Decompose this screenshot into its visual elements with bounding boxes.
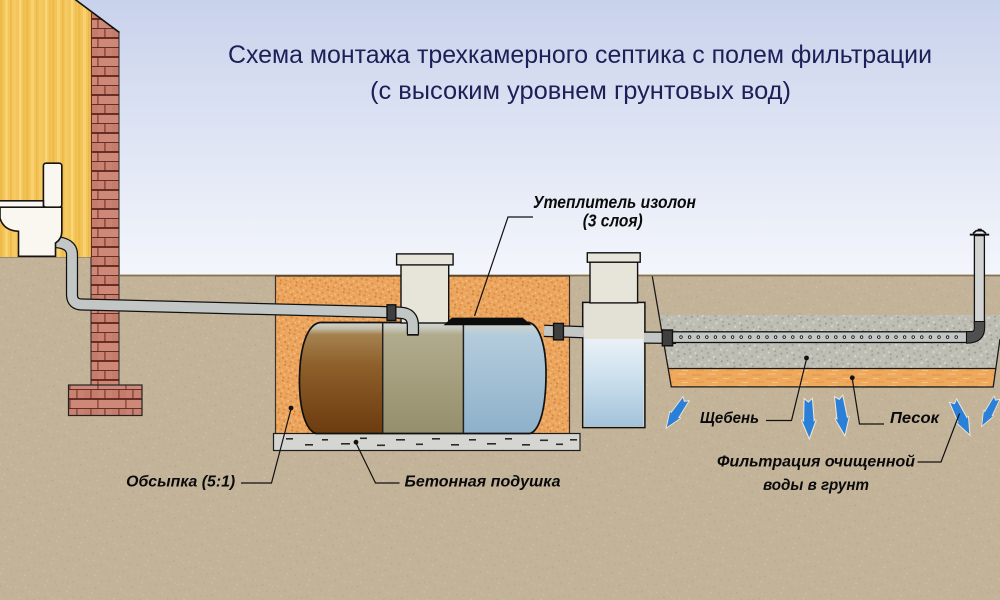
svg-text:Обсыпка (5:1): Обсыпка (5:1) <box>126 473 235 490</box>
svg-text:Щебень: Щебень <box>700 410 759 427</box>
svg-text:Схема монтажа трехкамерного се: Схема монтажа трехкамерного септика с по… <box>228 41 932 69</box>
svg-text:Бетонная подушка: Бетонная подушка <box>405 473 561 490</box>
svg-text:(3 слоя): (3 слоя) <box>583 211 643 231</box>
svg-text:(с высоким уровнем грунтовых в: (с высоким уровнем грунтовых вод) <box>370 77 791 105</box>
svg-text:Фильтрация очищенной: Фильтрация очищенной <box>717 454 916 471</box>
svg-text:Песок: Песок <box>890 410 940 427</box>
svg-text:воды в грунт: воды в грунт <box>763 477 869 494</box>
svg-text:Утеплитель изолон: Утеплитель изолон <box>533 192 696 212</box>
